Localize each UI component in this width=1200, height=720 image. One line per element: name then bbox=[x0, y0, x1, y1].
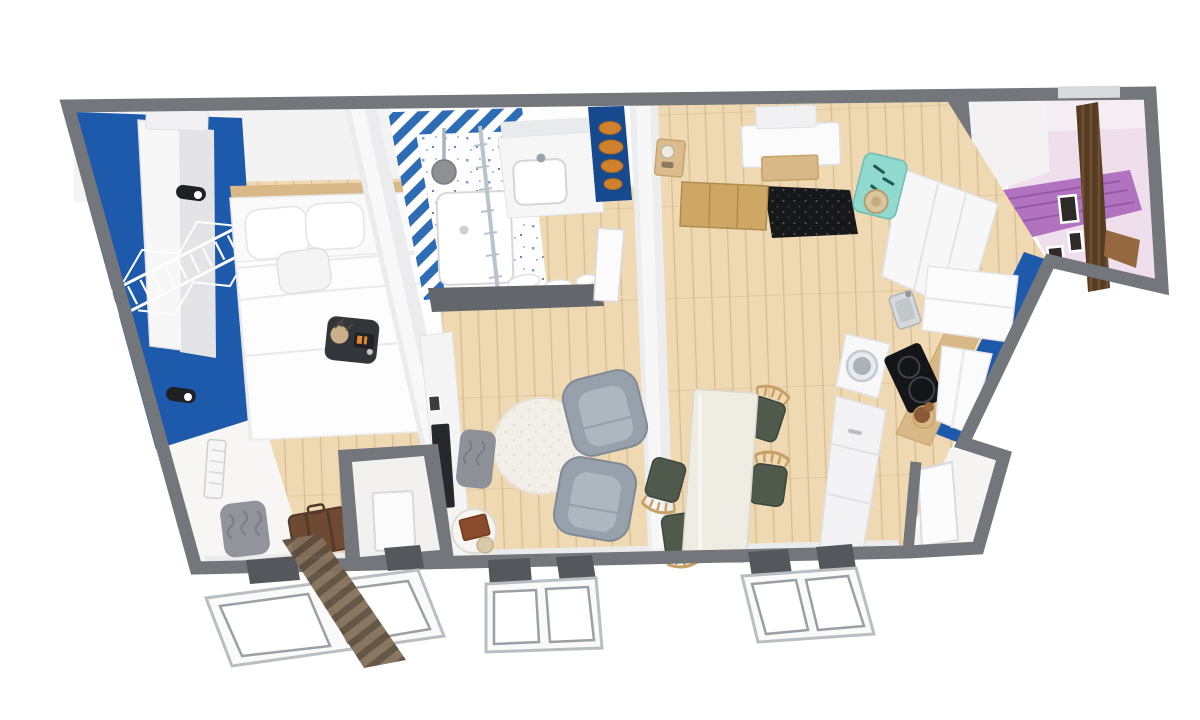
bathroom-door bbox=[594, 228, 624, 302]
window-living bbox=[486, 555, 602, 652]
window-pane-right bbox=[546, 587, 594, 642]
teddy-bear-head bbox=[924, 402, 934, 412]
floorplan-stage bbox=[0, 0, 1200, 720]
gray-wave-bench bbox=[455, 428, 497, 489]
closet-door-recess bbox=[373, 491, 416, 551]
window-pane-left bbox=[494, 590, 539, 644]
washing-machine-drum bbox=[853, 357, 871, 375]
shower-drain bbox=[460, 226, 469, 235]
wall-lamp-lower-bulb bbox=[184, 393, 192, 401]
wood-shelf-box bbox=[762, 155, 819, 181]
shower-tray bbox=[436, 191, 513, 286]
entry-wall-cabinet-top bbox=[756, 105, 817, 129]
doormat-speckles bbox=[764, 186, 858, 238]
vestibule-open-door bbox=[918, 462, 958, 546]
wooden-sideboard bbox=[680, 182, 768, 230]
window-stub-right bbox=[384, 545, 424, 571]
side-table-plate bbox=[477, 537, 493, 553]
sink-basin bbox=[513, 159, 567, 206]
radiator bbox=[204, 439, 226, 498]
bed-pillow-small bbox=[275, 247, 332, 296]
sink-faucet bbox=[537, 154, 546, 163]
white-dining-table bbox=[682, 389, 758, 563]
gray-wave-pouf bbox=[219, 499, 271, 558]
shelf-with-jar bbox=[654, 139, 685, 177]
adjoining-room-window-gap bbox=[1058, 86, 1120, 99]
window-stub-left bbox=[246, 556, 300, 584]
shower-head bbox=[432, 160, 456, 184]
armchair-lower bbox=[551, 454, 639, 544]
nightstand-with-alarm-clock bbox=[324, 315, 380, 364]
tv-wall-frame bbox=[428, 396, 440, 412]
wall-lamp-upper-bulb bbox=[194, 191, 202, 199]
bed-pillow-right bbox=[305, 202, 365, 251]
bedroom-wardrobe-top-box bbox=[146, 109, 209, 131]
floorplan-render bbox=[0, 0, 1200, 720]
